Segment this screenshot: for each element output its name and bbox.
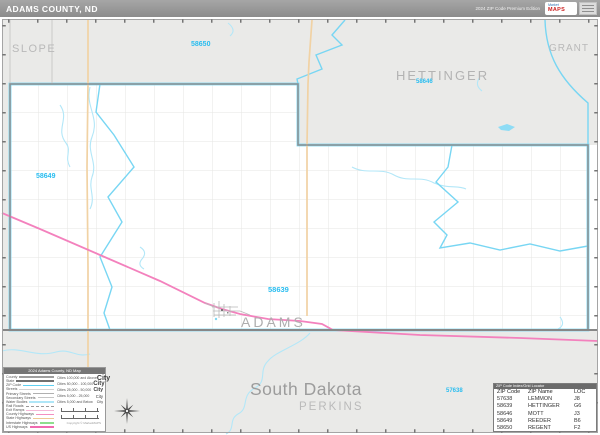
state-hwy-swatch (33, 418, 54, 419)
city-sample-s: City (96, 394, 103, 399)
primary-streets-swatch (33, 393, 54, 394)
table-row-cell: J3 (574, 412, 594, 418)
table-row-cell: G6 (574, 404, 594, 410)
table-row-cell: LEMMON (528, 397, 574, 403)
legend-item: US Highways (6, 425, 54, 429)
marketmaps-logo: Market MAPS (545, 2, 577, 15)
col-header-loc: LOC (574, 390, 594, 396)
table-row-cell: MOTT (528, 412, 574, 418)
city-sample-xl: City (97, 376, 110, 381)
logo-side-box (579, 2, 597, 15)
interstate-swatch (40, 422, 54, 424)
col-header-zip-code: ZIP Code (497, 390, 528, 396)
table-row-cell: J8 (574, 397, 594, 403)
table-row-cell: 58646 (497, 412, 528, 418)
map-canvas: SLOPE HETTINGER GRANT ADAMS South Dakota… (0, 17, 600, 435)
city-sample-l: City (93, 382, 104, 387)
exit-ramps-swatch (26, 410, 54, 411)
secondary-streets-swatch (38, 397, 54, 398)
title-bar: ADAMS COUNTY, ND 2024 ZIP Code Premium E… (0, 0, 600, 17)
compass-rose-icon (112, 396, 142, 426)
table-row-cell: 58649 (497, 419, 528, 425)
legend-city-row: Cities 5,000 and BelowCity (57, 399, 103, 405)
table-row-cell: B6 (574, 419, 594, 425)
table-row-cell: REGENT (528, 426, 574, 432)
scale-bar-km (61, 415, 99, 419)
zip-index-table: ZIP Code Index/Grid Locator ZIP Code ZIP… (493, 383, 597, 432)
city-sample-m: City (94, 388, 103, 393)
legend-cities-column: Cities 100,000 and AboveCity Cities 50,0… (57, 375, 103, 429)
city-sample-xs: City (97, 400, 103, 405)
scale-bar-miles (61, 408, 99, 412)
county-hwy-swatch (36, 414, 54, 415)
state-line-swatch (16, 380, 54, 382)
page-title: ADAMS COUNTY, ND (0, 4, 476, 14)
table-row-cell: 58639 (497, 404, 528, 410)
us-hwy-swatch (30, 426, 54, 428)
table-row-cell: F2 (574, 426, 594, 432)
legend-box: 2024 Adams County, ND Map County State Z… (3, 367, 106, 432)
map-poster-page: ADAMS COUNTY, ND 2024 ZIP Code Premium E… (0, 0, 600, 435)
legend-symbols-column: County State ZIP Code Streets Primary St… (6, 375, 54, 429)
streets-swatch (19, 389, 54, 390)
col-header-zip-name: ZIP Name (528, 390, 574, 396)
county-line-swatch (19, 376, 54, 378)
railroad-swatch (26, 406, 54, 407)
table-row-cell: 58650 (497, 426, 528, 432)
zip-line-swatch (23, 385, 54, 386)
water-swatch (29, 401, 54, 403)
edition-label: 2024 ZIP Code Premium Edition (476, 6, 540, 11)
table-row-cell: HETTINGER (528, 404, 574, 410)
legend-copyright: Copyright © MarketMAPS (57, 421, 103, 425)
table-row-cell: REEDER (528, 419, 574, 425)
table-row-cell: 57638 (497, 397, 528, 403)
logo-maps-text: MAPS (548, 8, 577, 13)
